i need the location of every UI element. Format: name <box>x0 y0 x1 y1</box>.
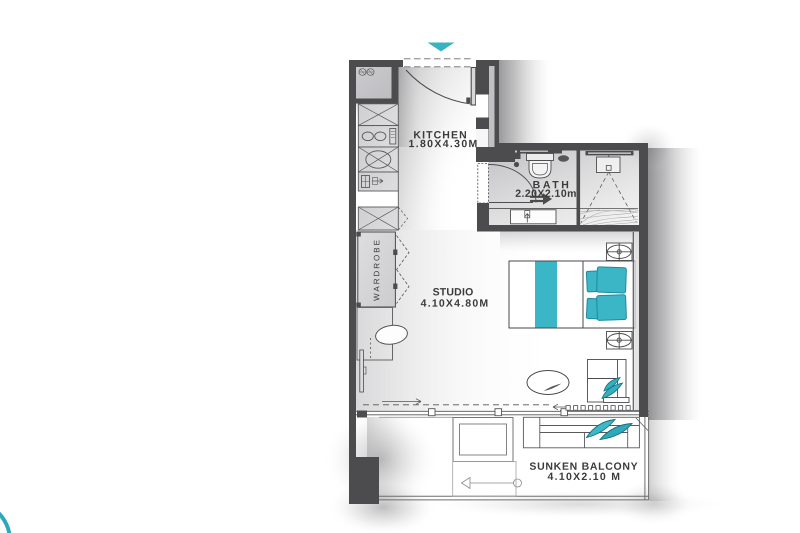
svg-text:4.10X4.80M: 4.10X4.80M <box>421 298 490 310</box>
svg-text:2.20X2.10m: 2.20X2.10m <box>515 188 577 200</box>
svg-text:4.10X2.10 M: 4.10X2.10 M <box>547 471 621 483</box>
svg-text:WARDROBE: WARDROBE <box>372 238 381 301</box>
svg-text:1.80X4.30M: 1.80X4.30M <box>409 138 479 150</box>
